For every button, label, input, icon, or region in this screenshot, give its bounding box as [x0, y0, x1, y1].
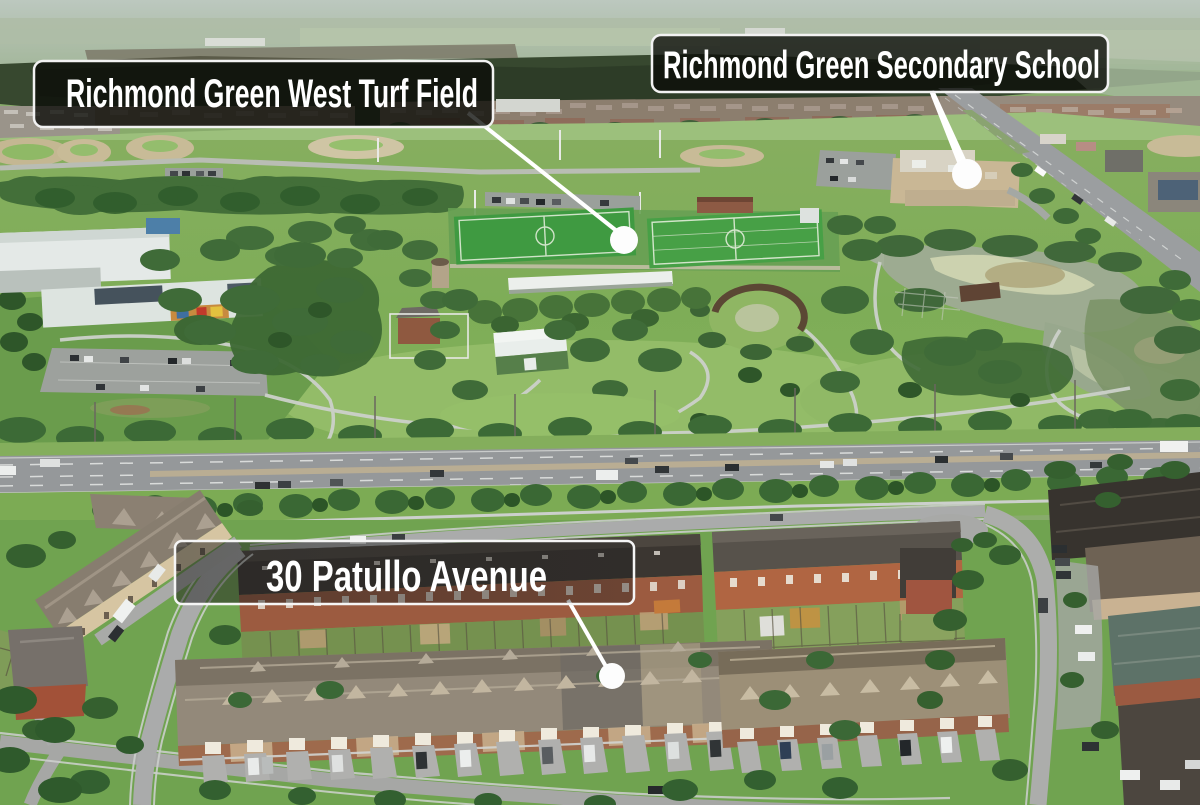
svg-text:Richmond Green Secondary Schoo: Richmond Green Secondary School [663, 44, 1100, 87]
svg-text:Richmond Green West Turf Field: Richmond Green West Turf Field [66, 72, 478, 116]
svg-text:30 Patullo Avenue: 30 Patullo Avenue [266, 552, 547, 601]
